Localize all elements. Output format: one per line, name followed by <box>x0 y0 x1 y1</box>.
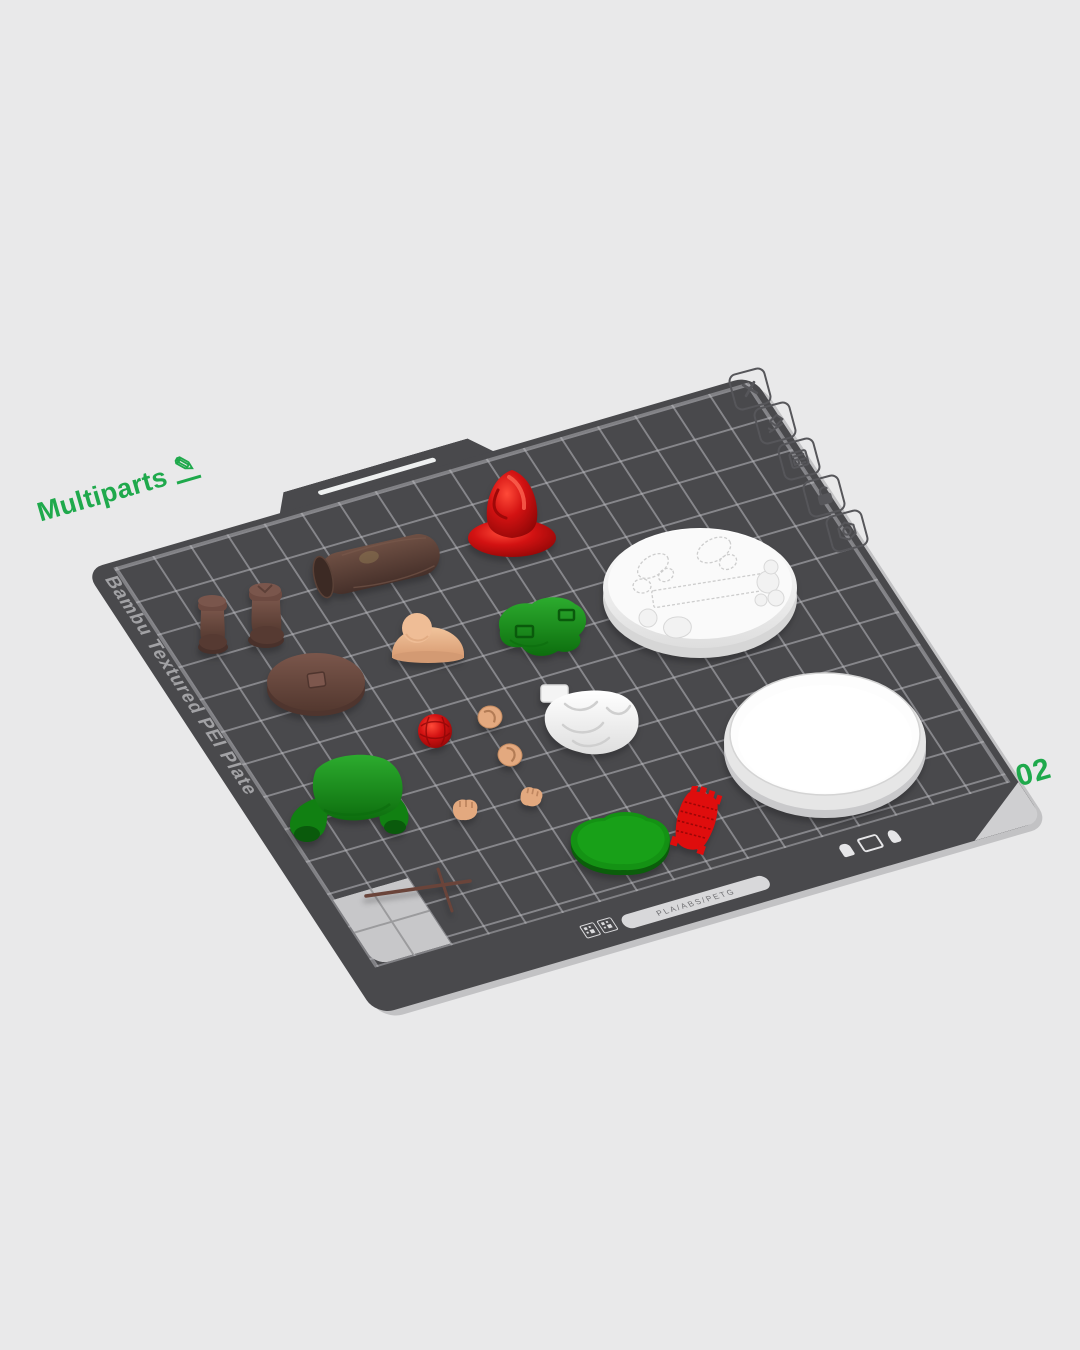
part-nose-and-cheeks[interactable] <box>386 606 470 664</box>
part-hand-right[interactable] <box>516 782 548 810</box>
project-label[interactable]: Multiparts ✎ <box>34 453 203 529</box>
part-ear-left[interactable] <box>476 704 506 732</box>
part-round-base-brown[interactable] <box>264 644 370 724</box>
part-base-with-footprints[interactable] <box>600 520 805 665</box>
part-log[interactable] <box>305 525 460 610</box>
close-icon <box>735 374 764 403</box>
layout-icon <box>784 444 813 473</box>
part-hand-left[interactable] <box>448 794 482 824</box>
part-beard[interactable] <box>535 683 645 765</box>
unlock-icon <box>809 481 838 510</box>
part-legs-with-buckles[interactable] <box>480 590 595 664</box>
part-knitted-patch[interactable] <box>666 786 726 864</box>
part-boot-right[interactable] <box>238 578 294 654</box>
part-ear-right[interactable] <box>496 742 526 770</box>
nut-icon <box>832 516 861 545</box>
part-knitting-needles[interactable] <box>358 850 483 920</box>
edit-plate-icon <box>760 408 789 437</box>
part-bowl-base[interactable] <box>715 662 940 827</box>
slicer-3d-viewport: Bambu Textured PEI Plate PLA/ABS/PETG <box>0 0 1080 1350</box>
part-boot-left[interactable] <box>188 590 238 660</box>
part-oval-base-green[interactable] <box>560 800 680 890</box>
part-coat[interactable] <box>278 736 426 848</box>
part-gnome-hat[interactable] <box>460 462 565 562</box>
project-label-text: Multiparts <box>34 462 171 529</box>
edit-pencil-icon[interactable]: ✎ <box>170 450 201 484</box>
